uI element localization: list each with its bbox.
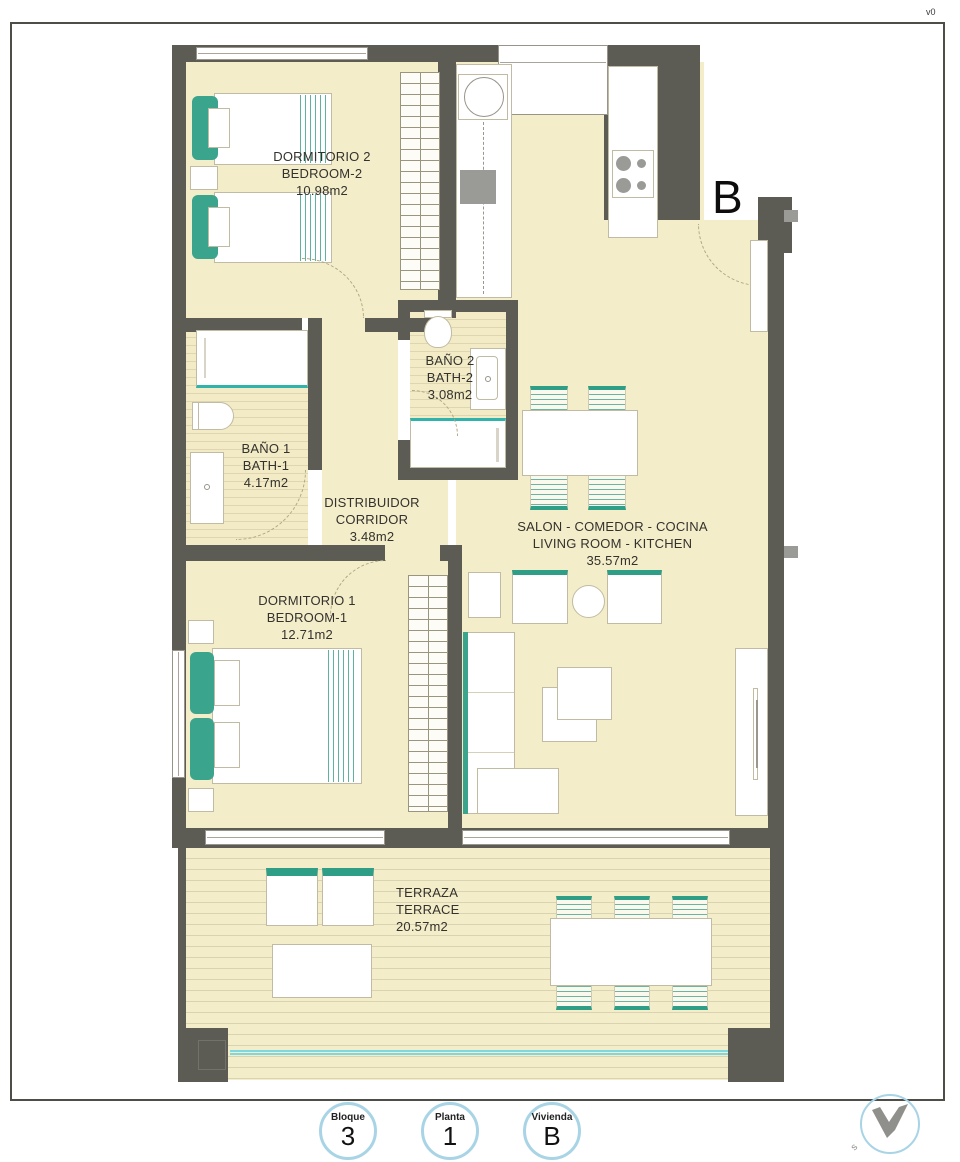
side-table bbox=[468, 572, 501, 618]
nightstand bbox=[188, 788, 214, 812]
glass-balustrade bbox=[230, 1050, 728, 1055]
wardrobe bbox=[400, 72, 440, 290]
tv-bench bbox=[735, 648, 768, 816]
room-label-terraza: TERRAZA TERRACE 20.57m2 bbox=[396, 884, 526, 935]
burner-icon bbox=[637, 159, 646, 168]
sink-icon bbox=[464, 77, 504, 117]
logo-check-icon bbox=[862, 1096, 918, 1152]
room-label-dormitorio1: DORMITORIO 1 BEDROOM-1 12.71m2 bbox=[247, 592, 367, 643]
hall-cabinet bbox=[750, 240, 768, 332]
pillar-detail bbox=[198, 1040, 226, 1070]
terrace-pillar bbox=[728, 1028, 784, 1082]
counter-centerline bbox=[483, 122, 485, 294]
wall-stub bbox=[784, 210, 798, 222]
window-line bbox=[178, 652, 179, 776]
wall-segment bbox=[438, 45, 456, 318]
logo-letter: s bbox=[849, 1142, 860, 1153]
room-label-distribuidor: DISTRIBUIDOR CORRIDOR 3.48m2 bbox=[312, 494, 432, 545]
nightstand bbox=[190, 166, 218, 190]
shower-handle bbox=[496, 428, 499, 462]
terrace-dining-table bbox=[550, 918, 712, 986]
burner-icon bbox=[616, 178, 631, 193]
room-label-dormitorio2: DORMITORIO 2 BEDROOM-2 10.98m2 bbox=[252, 148, 392, 199]
floorplan-canvas: v0 B bbox=[0, 0, 960, 1162]
lounger bbox=[322, 868, 374, 926]
pillow bbox=[208, 108, 230, 148]
window-line bbox=[207, 837, 383, 838]
wall-stub bbox=[784, 546, 798, 558]
window-line bbox=[464, 837, 728, 838]
version-label: v0 bbox=[926, 7, 936, 17]
toilet-icon bbox=[424, 316, 452, 348]
wall-segment bbox=[398, 300, 410, 340]
drain-dot bbox=[204, 484, 210, 490]
kitchen-window-counter bbox=[498, 45, 608, 115]
wall-segment bbox=[448, 545, 462, 828]
headboard bbox=[190, 652, 214, 714]
window-line bbox=[500, 62, 606, 63]
window-line bbox=[198, 53, 366, 54]
coffee-table bbox=[557, 667, 612, 720]
wardrobe bbox=[408, 575, 448, 812]
badge-bloque: Bloque 3 bbox=[319, 1102, 377, 1160]
sofa-seam bbox=[468, 692, 514, 693]
armchair bbox=[512, 570, 568, 624]
badge-planta: Planta 1 bbox=[421, 1102, 479, 1160]
armchair bbox=[607, 570, 662, 624]
burner-icon bbox=[616, 156, 631, 171]
wall-segment bbox=[398, 468, 518, 480]
bed-foot-stripes bbox=[296, 194, 326, 261]
wall-segment bbox=[506, 300, 518, 480]
pillow bbox=[208, 207, 230, 247]
wall-segment bbox=[768, 253, 784, 848]
lounger bbox=[266, 868, 318, 926]
wall-segment bbox=[398, 300, 518, 312]
entrance-label: B bbox=[712, 170, 744, 224]
dining-table bbox=[522, 410, 638, 476]
room-label-bano2: BAÑO 2 BATH-2 3.08m2 bbox=[400, 352, 500, 403]
sofa-seam bbox=[468, 752, 514, 753]
brand-logo bbox=[860, 1094, 920, 1154]
tv-icon bbox=[756, 700, 758, 768]
nightstand bbox=[188, 620, 214, 644]
headboard bbox=[190, 718, 214, 780]
round-table bbox=[572, 585, 605, 618]
sofa-back bbox=[463, 632, 468, 814]
burner-icon bbox=[637, 181, 646, 190]
sofa-chaise bbox=[477, 768, 559, 814]
room-label-salon: SALON - COMEDOR - COCINA LIVING ROOM - K… bbox=[505, 518, 720, 569]
bed-foot-stripes bbox=[324, 650, 358, 782]
pillow bbox=[214, 660, 240, 706]
terrace-table bbox=[272, 944, 372, 998]
pillow bbox=[214, 722, 240, 768]
wall-segment bbox=[770, 848, 784, 1028]
oven-icon bbox=[460, 170, 496, 204]
wall-segment bbox=[178, 848, 186, 1028]
wall-segment bbox=[172, 545, 385, 561]
toilet-icon bbox=[198, 402, 234, 430]
shower bbox=[196, 330, 308, 388]
shower-handle bbox=[204, 338, 206, 378]
room-label-bano1: BAÑO 1 BATH-1 4.17m2 bbox=[216, 440, 316, 491]
badge-vivienda: Vivienda B bbox=[523, 1102, 581, 1160]
